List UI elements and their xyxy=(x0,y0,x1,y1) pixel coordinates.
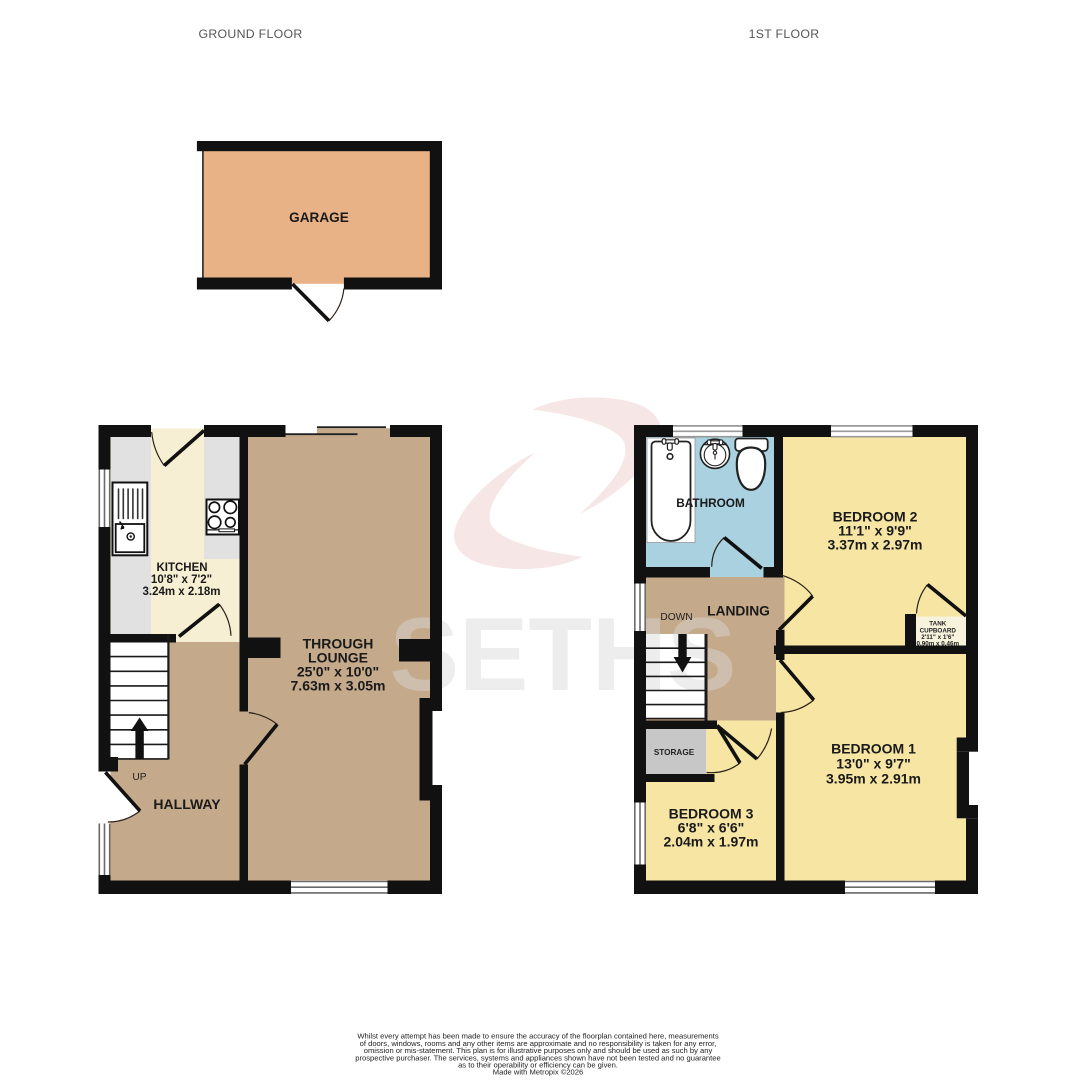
svg-text:1ST FLOOR: 1ST FLOOR xyxy=(749,27,820,41)
svg-text:3.24m x 2.18m: 3.24m x 2.18m xyxy=(142,586,220,598)
svg-text:2.04m x 1.97m: 2.04m x 1.97m xyxy=(664,834,759,850)
svg-text:STORAGE: STORAGE xyxy=(654,748,695,757)
svg-text:Made with Metropix ©2026: Made with Metropix ©2026 xyxy=(493,1068,583,1077)
svg-text:10'8" x 7'2": 10'8" x 7'2" xyxy=(151,574,212,586)
svg-text:KITCHEN: KITCHEN xyxy=(156,562,207,574)
svg-text:GROUND FLOOR: GROUND FLOOR xyxy=(198,27,302,41)
svg-text:LANDING: LANDING xyxy=(707,604,770,619)
svg-text:7.63m x 3.05m: 7.63m x 3.05m xyxy=(291,678,386,694)
svg-text:BEDROOM 1: BEDROOM 1 xyxy=(831,741,916,757)
svg-text:UP: UP xyxy=(132,772,146,783)
svg-text:13'0" x 9'7": 13'0" x 9'7" xyxy=(836,756,910,772)
svg-text:DOWN: DOWN xyxy=(660,612,692,623)
svg-text:GARAGE: GARAGE xyxy=(289,210,349,225)
svg-text:BATHROOM: BATHROOM xyxy=(676,496,745,510)
svg-text:HALLWAY: HALLWAY xyxy=(153,796,221,812)
svg-text:3.37m x 2.97m: 3.37m x 2.97m xyxy=(828,537,923,553)
svg-text:0.90m x 0.46m: 0.90m x 0.46m xyxy=(916,641,959,648)
svg-text:3.95m x 2.91m: 3.95m x 2.91m xyxy=(826,771,921,787)
